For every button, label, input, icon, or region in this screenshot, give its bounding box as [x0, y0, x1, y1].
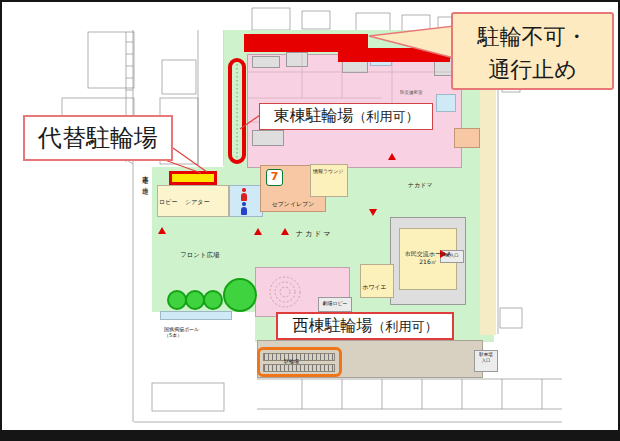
storage-room-label: 防災備蓄室 [400, 90, 423, 96]
entrance-label: 駐車場 入口 [474, 352, 498, 363]
nakadoma-label-2: ナカドマ [408, 181, 433, 189]
alternative-parking-label: 代替駐輪場 [38, 124, 158, 152]
east-parking-label: 東棟駐輪場 [274, 106, 354, 125]
foyer-label: ホワイエ [362, 283, 387, 291]
no-parking-callout-line1: 駐輪不可・ [453, 20, 612, 53]
west-parking-label: 西棟駐輪場 [293, 316, 373, 335]
alternative-parking-label-box: 代替駐輪場 [23, 115, 173, 161]
east-parking-label-box: 東棟駐輪場（利用可） [259, 103, 433, 130]
slide-bottom-border [2, 430, 618, 439]
site-map-slide: 7 [0, 0, 620, 441]
lobby-label: ロビー [159, 198, 177, 206]
no-parking-callout-line2: 通行止め [453, 53, 612, 86]
east-parking-note: （利用可） [354, 109, 419, 124]
west-parking-note: （利用可） [373, 319, 438, 334]
flag-poles-label: 国旗掲揚ポール （5本） [164, 326, 216, 339]
theater-lobby-label: 劇場ロビー [318, 300, 352, 306]
theater-label: シアター [185, 198, 209, 206]
seven-eleven-label: セブンイレブン [260, 200, 326, 208]
front-plaza-label: フロント広場 [180, 251, 220, 259]
nakadoma-label: ナカドマ [296, 230, 333, 239]
info-lounge-label: 情報ラウンジ [313, 168, 347, 174]
no-parking-callout: 駐輪不可・ 通行止め [451, 12, 614, 90]
loading-dock-label: 搬入口 [440, 253, 464, 259]
west-parking-label-box: 西棟駐輪場（利用可） [276, 312, 454, 340]
street-label: 大手通り歩道 [141, 170, 149, 183]
bike-area-label: 駐輪場 [284, 358, 299, 364]
